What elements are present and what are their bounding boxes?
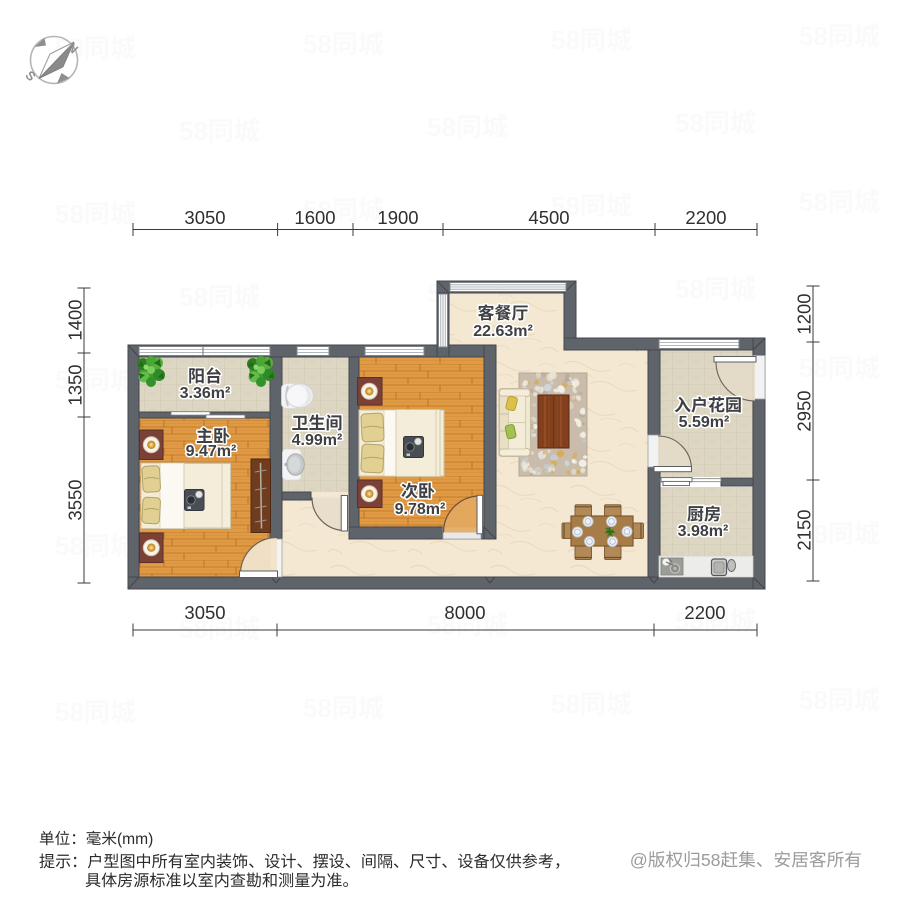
svg-text:58同城: 58同城 xyxy=(179,282,260,312)
svg-text:2150: 2150 xyxy=(794,509,815,550)
svg-text:58同城: 58同城 xyxy=(551,689,632,719)
svg-text:4.99m²: 4.99m² xyxy=(292,432,343,449)
svg-text:单位：毫米(mm): 单位：毫米(mm) xyxy=(39,830,153,848)
svg-text:22.63m²: 22.63m² xyxy=(473,323,533,340)
svg-text:58同城: 58同城 xyxy=(551,25,632,55)
svg-text:2200: 2200 xyxy=(685,207,726,228)
svg-text:9.78m²: 9.78m² xyxy=(395,501,446,518)
svg-text:58同城: 58同城 xyxy=(799,353,880,383)
svg-text:1200: 1200 xyxy=(794,293,815,334)
svg-text:1600: 1600 xyxy=(294,207,335,228)
svg-text:3.36m²: 3.36m² xyxy=(180,385,231,402)
svg-text:58同城: 58同城 xyxy=(799,187,880,217)
svg-text:58同城: 58同城 xyxy=(55,199,136,229)
svg-text:客餐厅: 客餐厅 xyxy=(478,304,529,323)
svg-text:9.47m²: 9.47m² xyxy=(186,443,237,460)
svg-text:3050: 3050 xyxy=(184,602,225,623)
svg-text:1900: 1900 xyxy=(377,207,418,228)
svg-text:3050: 3050 xyxy=(184,207,225,228)
svg-text:@版权归58赶集、安居客所有: @版权归58赶集、安居客所有 xyxy=(630,850,862,870)
svg-text:卫生间: 卫生间 xyxy=(292,414,343,433)
svg-text:厨房: 厨房 xyxy=(687,505,721,524)
svg-text:58同城: 58同城 xyxy=(427,112,508,142)
svg-text:58同城: 58同城 xyxy=(799,685,880,715)
svg-text:5.59m²: 5.59m² xyxy=(679,414,730,431)
svg-text:1350: 1350 xyxy=(65,364,86,405)
svg-text:58同城: 58同城 xyxy=(55,697,136,727)
svg-text:3550: 3550 xyxy=(65,479,86,520)
svg-text:58同城: 58同城 xyxy=(675,108,756,138)
svg-text:4500: 4500 xyxy=(528,207,569,228)
svg-text:次卧: 次卧 xyxy=(401,482,435,501)
svg-text:2200: 2200 xyxy=(684,602,725,623)
svg-text:3.98m²: 3.98m² xyxy=(678,523,729,540)
svg-text:2950: 2950 xyxy=(794,390,815,431)
svg-text:58同城: 58同城 xyxy=(303,693,384,723)
svg-text:1400: 1400 xyxy=(65,299,86,340)
svg-text:58同城: 58同城 xyxy=(179,116,260,146)
svg-text:阳台: 阳台 xyxy=(188,367,222,386)
svg-text:8000: 8000 xyxy=(444,602,485,623)
svg-text:58同城: 58同城 xyxy=(799,21,880,51)
svg-text:58同城: 58同城 xyxy=(55,531,136,561)
svg-text:入户花园: 入户花园 xyxy=(674,396,742,415)
svg-text:提示：户型图中所有室内装饰、设计、摆设、间隔、尺寸、设备仅供: 提示：户型图中所有室内装饰、设计、摆设、间隔、尺寸、设备仅供参考， xyxy=(39,853,570,871)
svg-text:58同城: 58同城 xyxy=(675,274,756,304)
svg-text:具体房源标准以室内查勘和测量为准。: 具体房源标准以室内查勘和测量为准。 xyxy=(85,872,359,890)
svg-text:58同城: 58同城 xyxy=(303,29,384,59)
